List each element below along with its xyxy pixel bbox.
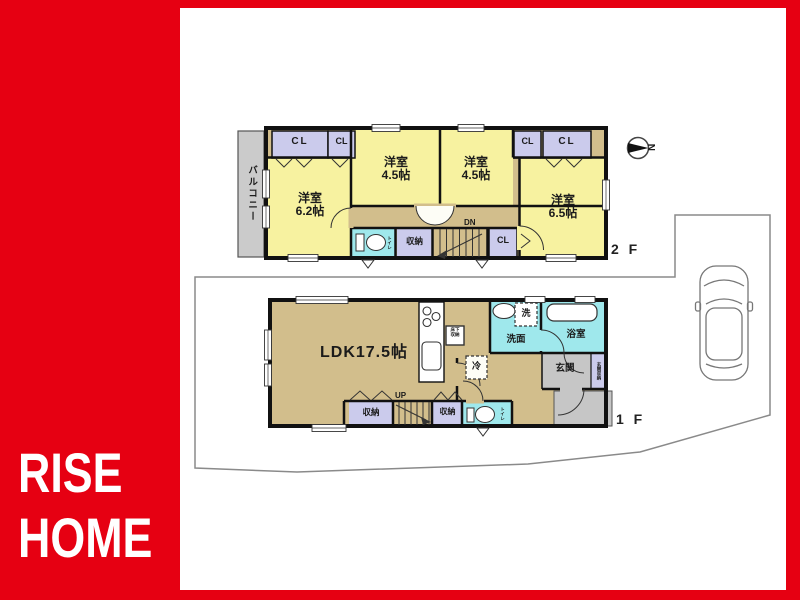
room-label-southeast-bedroom: 洋室 6.5帖 xyxy=(527,194,599,220)
washer-label: 洗 xyxy=(515,309,537,319)
brand-line2: HOME xyxy=(18,505,152,570)
flyer-page: { "brand": { "line1": "RISE", "line2": "… xyxy=(0,0,800,600)
washbasin-icon xyxy=(493,304,515,319)
vent-mark xyxy=(362,260,374,268)
closet-label-cl1: CL xyxy=(272,137,328,148)
storage-label-1f-a: 収納 xyxy=(349,408,393,417)
brand-line1: RISE xyxy=(18,440,152,505)
toilet-label-1f: トイレ xyxy=(498,404,506,424)
refrigerator-label: 冷 xyxy=(466,362,487,372)
washroom-label: 洗面 xyxy=(492,335,540,345)
bathtub-icon xyxy=(547,304,597,321)
car-icon xyxy=(696,266,753,380)
stairs-dn-label: DN xyxy=(464,219,476,228)
storage-label-2f: 収納 xyxy=(397,237,432,246)
floor2-label: 2 F xyxy=(611,242,640,257)
bathroom-label: 浴室 xyxy=(550,330,602,340)
closet-label-cl3: CL xyxy=(514,137,541,147)
floor1-label: 1 F xyxy=(616,412,645,427)
closet-label-cl2: CL xyxy=(328,137,355,147)
toilet-icon-2f xyxy=(356,234,386,251)
brand-logo: RISE HOME xyxy=(18,440,152,570)
toilet-icon-1f xyxy=(467,407,495,423)
toilet-label-2f: トイレ xyxy=(385,232,393,254)
vent-mark xyxy=(476,260,488,268)
stairs-up-label: UP xyxy=(395,392,406,401)
closet-label-cl5: CL xyxy=(489,236,517,246)
balcony-label: バルコニー xyxy=(238,131,264,257)
underfloor-storage-label: 床下 収納 xyxy=(446,328,464,338)
room-label-east-bedroom: 洋室 4.5帖 xyxy=(441,156,511,182)
floorplan-lineart xyxy=(180,8,786,590)
closet-label-cl4: CL xyxy=(543,137,591,148)
floorplan-canvas: N バルコニー CL CL CL CL CL 洋室 6.2帖 洋室 4.5帖 洋… xyxy=(180,8,786,590)
room-label-center-bedroom: 洋室 4.5帖 xyxy=(360,156,432,182)
compass-north-label: N xyxy=(644,144,655,151)
ldk-label: LDK17.5帖 xyxy=(288,344,440,361)
storage-label-1f-b: 収納 xyxy=(433,408,462,417)
vent-mark xyxy=(477,428,489,436)
entrance-label: 玄関 xyxy=(542,364,588,374)
room-label-west-bedroom: 洋室 6.2帖 xyxy=(274,192,346,218)
entrance-storage-label: 玄関収納 xyxy=(591,353,606,389)
